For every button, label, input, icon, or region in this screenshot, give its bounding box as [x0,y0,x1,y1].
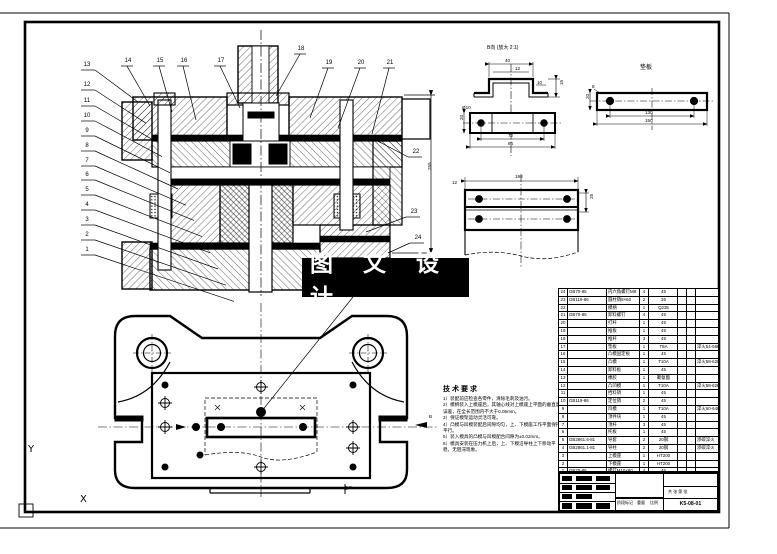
bom-cell: 模柄 [607,305,640,312]
bom-cell: 19 [559,328,568,335]
bom-cell: HT200 [649,453,678,460]
bom-cell [678,461,687,468]
bom-cell [568,328,607,335]
bom-cell [687,422,696,429]
bom-cell [687,344,696,351]
bom-cell: 2 [640,445,649,452]
bom-cell: GB119-86 [568,398,607,405]
bom-cell: 顶杆 [607,422,640,429]
bom-row: 9凹模1T10A淬火60-64HRC [559,405,718,413]
bom-cell: 35 [649,297,678,304]
bom-cell: 挡料销 [607,390,640,397]
bom-cell: 45 [649,367,678,374]
bom-cell: 1 [640,383,649,390]
part-callout: 24 [411,235,425,242]
bom-table: 24GB70-85内六角螺钉M844523GB119-86圆柱销8×602352… [558,288,719,472]
bom-cell: T8A [649,344,678,351]
bom-cell [678,390,687,397]
bom-cell [678,375,687,382]
dim-label: B [349,485,352,490]
bom-row: 10GB119-86定位销245 [559,397,718,405]
bom-cell: 16 [559,351,568,358]
ucs-x-axis-label: X [80,494,87,505]
part-callout: 6 [80,172,94,179]
bom-cell: 14 [559,367,568,374]
bom-cell [568,429,607,436]
bom-cell: 4 [559,445,568,452]
bom-cell [687,437,696,444]
bom-cell [687,375,696,382]
bom-cell: 推板 [607,328,640,335]
bom-cell: 内六角螺钉M8 [607,289,640,296]
bom-row: 22模柄1Q235 [559,304,718,312]
bom-cell: 打杆 [607,320,640,327]
bom-cell [678,320,687,327]
bom-cell: 1 [640,375,649,382]
bom-row: 2下模座1HT200 [559,460,718,468]
bom-cell: 1 [640,344,649,351]
bom-cell: 2 [640,437,649,444]
bom-cell: 推杆 [607,336,640,343]
bom-cell: 下模座 [607,461,640,468]
title-block-stage-label: 阶段标记 [617,500,633,505]
bom-cell [696,297,718,304]
bom-cell: 45 [649,351,678,358]
bom-cell: GB2861.6-81 [568,437,607,444]
bom-cell: 11 [559,390,568,397]
bom-cell: 卸料螺钉 [607,312,640,319]
bom-cell: 淬火54-58HRC [696,344,718,351]
bom-cell: 4 [640,289,649,296]
part-callout: 4 [80,202,94,209]
bom-cell: 18 [559,336,568,343]
bom-cell [568,461,607,468]
bom-cell: 3 [640,422,649,429]
detail-hat-view [474,62,560,156]
bom-cell: 聚氨酯 [649,375,678,382]
bom-cell [687,429,696,436]
bom-cell [687,359,696,366]
bom-cell [568,367,607,374]
bom-cell [696,336,718,343]
detail-backing-plate [590,88,714,130]
title-block-scale-label: 比例 [650,500,658,505]
bom-cell: 垫板 [607,344,640,351]
bom-cell: 45 [649,414,678,421]
dim-label: 15 [559,80,564,85]
tech-note-item: 6）模具安装在压力机上后，上、下模沿导柱上下移动平稳，无阻滞现象。 [443,441,561,454]
bom-cell [678,398,687,405]
bom-cell: 1 [640,320,649,327]
bom-cell: 9 [559,406,568,413]
part-callout: 13 [80,62,94,69]
dim-label: B [429,414,432,419]
part-callout: 10 [80,113,94,120]
bom-cell [696,453,718,460]
detail-die-strip [465,174,589,268]
bom-cell: 45 [649,398,678,405]
bom-cell [687,312,696,319]
bom-cell: 2 [640,398,649,405]
dim-label: 130 [645,110,653,115]
title-block-weight-label: 重量 [637,500,645,505]
part-callout: 19 [322,60,336,67]
bom-cell: 8 [559,414,568,421]
tech-notes: 技术要求 1）装配前应检查各零件，清除毛刺及油污。2）模柄装入上模座后，其轴心线… [443,384,561,454]
bom-cell [696,312,718,319]
bom-cell [696,328,718,335]
tech-notes-title: 技术要求 [443,384,561,394]
bom-cell [678,422,687,429]
bom-cell: 上模座 [607,453,640,460]
dim-label: Ø10 [462,105,471,110]
bom-cell [687,328,696,335]
bom-cell: 导套 [607,437,640,444]
bom-cell: 1 [640,406,649,413]
bom-cell [678,351,687,358]
bom-cell [696,320,718,327]
dim-label: 25 [589,194,594,199]
bom-cell [678,367,687,374]
bom-row: 17垫板1T8A淬火54-58HRC [559,343,718,351]
bom-cell: 45 [649,320,678,327]
bom-cell: 3 [640,336,649,343]
watermark-text: 图 文 设 计 [310,244,469,312]
bom-cell [687,461,696,468]
bom-cell: Q235 [649,305,678,312]
bom-cell: T10A [649,383,678,390]
bom-cell: 淬火58-62HRC [696,383,718,390]
bom-cell [678,406,687,413]
bom-cell: 1 [640,390,649,397]
bom-cell: GB70-85 [568,312,607,319]
part-callout: 14 [121,58,135,65]
bom-cell: 45 [649,312,678,319]
bom-cell: 15 [559,359,568,366]
bom-cell [687,320,696,327]
part-callout: 18 [294,46,308,53]
bom-cell [696,414,718,421]
bom-cell: 1 [640,453,649,460]
bom-cell: 20钢 [649,445,678,452]
bom-cell: 渗碳淬火 [696,437,718,444]
bom-cell: 凹模 [607,406,640,413]
bom-cell: 12 [559,383,568,390]
dim-label: 8 [592,84,595,89]
dim-label: 10 [537,80,542,85]
drawing-sheet: 图 文 设 计 Y X B向 (放大 2:1) 垫板 技术要求 1）装配前应检查… [0,0,777,554]
bom-cell: 45 [649,429,678,436]
bom-cell: 1 [640,328,649,335]
part-callout: 3 [80,217,94,224]
bom-cell: 2 [640,297,649,304]
bom-row: 24GB70-85内六角螺钉M8445 [559,289,718,296]
bom-cell [678,453,687,460]
detail-view-b-label: B向 (放大 2:1) [487,44,518,51]
bom-cell [568,351,607,358]
bom-cell: 橡胶 [607,375,640,382]
bom-cell: 淬火58-62HRC [696,359,718,366]
bom-cell [568,320,607,327]
bom-cell [568,453,607,460]
title-block: 阶段标记 重量 比例 共 张 第 张 K5-08-01 [558,472,719,512]
bom-cell: 22 [559,305,568,312]
part-callout: 11 [80,98,94,105]
bom-cell: 45 [649,289,678,296]
bom-row: 20打杆145 [559,319,718,327]
bom-cell [696,305,718,312]
bom-cell: 23 [559,297,568,304]
bom-cell [678,359,687,366]
bom-cell: 托板 [607,429,640,436]
bom-row: 14卸料板145 [559,366,718,374]
bom-cell [687,305,696,312]
bom-cell [568,390,607,397]
bom-cell: 1 [640,305,649,312]
bom-cell: 45 [649,422,678,429]
dim-label: 198 [515,174,523,179]
part-callout: 15 [153,58,167,65]
bom-cell: 21 [559,312,568,319]
bom-cell [696,289,718,296]
bom-cell: 圆柱销8×60 [607,297,640,304]
bom-cell: 1 [640,429,649,436]
bom-cell [568,336,607,343]
bom-cell [568,305,607,312]
bom-cell: 1 [640,367,649,374]
bom-cell: 1 [640,351,649,358]
bom-cell: 1 [640,414,649,421]
bom-cell [696,422,718,429]
bom-row: 18推杆345 [559,335,718,343]
drawing-number: K5-08-01 [663,501,718,507]
plan-view [98,297,438,497]
bom-row: 16凸模固定板145 [559,350,718,358]
bom-cell: 3 [559,453,568,460]
bom-cell [678,297,687,304]
bom-cell: 20 [559,320,568,327]
bom-cell [696,398,718,405]
part-callout: 12 [80,82,94,89]
bom-cell [678,429,687,436]
part-callout: 2 [80,232,94,239]
bom-cell: 20钢 [649,437,678,444]
bom-cell: 45 [649,336,678,343]
backing-plate-label: 垫板 [640,62,652,71]
bom-cell: GB70-85 [568,289,607,296]
bom-cell: 顶件块 [607,414,640,421]
tech-notes-list: 1）装配前应检查各零件，清除毛刺及油污。2）模柄装入上模座后，其轴心线对上模座上… [443,396,561,454]
dim-label: 150 [645,118,653,123]
bom-cell [696,429,718,436]
bom-cell: HT200 [649,461,678,468]
bom-row: 8顶件块145 [559,413,718,421]
bom-cell: 凸模 [607,359,640,366]
bom-row: 7顶杆345 [559,421,718,429]
bom-cell: 1 [640,359,649,366]
bom-cell [568,375,607,382]
dim-label: 86 [508,141,513,146]
bom-cell: 13 [559,375,568,382]
bom-cell [687,383,696,390]
dim-label: 72 [508,133,513,138]
bom-cell [568,422,607,429]
bom-row: 15凸模1T10A淬火58-62HRC [559,358,718,366]
dim-label: 20 [585,94,590,99]
bom-cell [696,351,718,358]
bom-cell: 2 [559,461,568,468]
watermark-banner: 图 文 设 计 [302,258,469,297]
bom-row: 3上模座1HT200 [559,452,718,460]
bom-cell [678,414,687,421]
part-callout: 5 [80,187,94,194]
bom-row: 23GB119-86圆柱销8×60235 [559,296,718,304]
bom-row: 12凸凹模1T10A淬火58-62HRC [559,382,718,390]
bom-cell [687,390,696,397]
ucs-y-axis-label: Y [28,444,34,455]
bom-cell: 渗碳淬火 [696,445,718,452]
bom-row: 19推板145 [559,327,718,335]
tech-note-item: 4）凸模与凹模装配后间隙均匀，上、下模座工作平面保持平行。 [443,422,561,435]
bom-rows: 24GB70-85内六角螺钉M844523GB119-86圆柱销8×602352… [559,289,718,475]
tech-note-item: 2）模柄装入上模座后，其轴心线对上模座上平面的垂直度误差，在全长范围内不大于0.… [443,402,561,415]
bom-cell: 淬火60-64HRC [696,406,718,413]
bom-cell [678,328,687,335]
bom-cell [687,445,696,452]
bom-cell [568,383,607,390]
dim-label: 255 [427,162,432,170]
part-callout: 21 [383,60,397,67]
bom-cell [568,414,607,421]
bom-cell: 17 [559,344,568,351]
bom-cell [678,336,687,343]
bom-cell [696,375,718,382]
bom-cell [678,312,687,319]
bom-cell [696,461,718,468]
bom-cell [678,289,687,296]
bom-cell: 导柱 [607,445,640,452]
bom-cell [687,351,696,358]
title-block-sheets-label: 共 张 第 张 [668,489,687,494]
bom-cell [678,344,687,351]
part-callout: 9 [80,128,94,135]
bom-row: 13橡胶1聚氨酯 [559,374,718,382]
bom-cell [678,383,687,390]
bom-cell: 24 [559,289,568,296]
part-callout: 22 [409,149,423,156]
bom-cell [678,305,687,312]
dim-label: 40 [505,58,510,63]
bom-cell [687,453,696,460]
part-callout: 23 [407,209,421,216]
part-callout: 16 [177,58,191,65]
bom-cell [687,297,696,304]
dim-label: 12 [452,180,457,185]
bom-row: 6托板145 [559,428,718,436]
part-callout: 8 [80,143,94,150]
bom-cell [568,359,607,366]
dim-label: 20 [459,115,464,120]
bom-cell [687,398,696,405]
bom-cell [696,390,718,397]
bom-cell [678,437,687,444]
bom-cell: 7 [559,422,568,429]
bom-cell: 凸凹模 [607,383,640,390]
bom-cell [687,406,696,413]
bom-cell: 10 [559,398,568,405]
bom-cell: 5 [559,437,568,444]
bom-row: 5GB2861.6-81导套220钢渗碳淬火 [559,436,718,444]
bom-cell: 卸料板 [607,367,640,374]
bom-row: 21GB70-85卸料螺钉445 [559,311,718,319]
bom-cell [678,445,687,452]
bom-cell: 4 [640,312,649,319]
bom-cell: T10A [649,406,678,413]
bom-cell: 定位销 [607,398,640,405]
bom-cell [568,344,607,351]
bom-row: 4GB2861.1-81导柱220钢渗碳淬火 [559,444,718,452]
part-callout: 1 [80,247,94,254]
bom-cell: GB119-86 [568,297,607,304]
part-callout: 20 [354,60,368,67]
dim-label: 12 [515,66,520,71]
bom-cell: GB2861.1-81 [568,445,607,452]
bom-cell: 1 [640,461,649,468]
part-callout: 17 [214,58,228,65]
bom-cell: 6 [559,429,568,436]
bom-cell [568,406,607,413]
bom-cell [687,336,696,343]
bom-cell [687,414,696,421]
bom-cell [687,289,696,296]
bom-cell [687,367,696,374]
bom-cell: 凸模固定板 [607,351,640,358]
bom-cell: T10A [649,359,678,366]
bom-cell: 45 [649,390,678,397]
part-callout: 7 [80,158,94,165]
bom-row: 11挡料销145 [559,389,718,397]
bom-cell [696,367,718,374]
bom-cell: 45 [649,328,678,335]
